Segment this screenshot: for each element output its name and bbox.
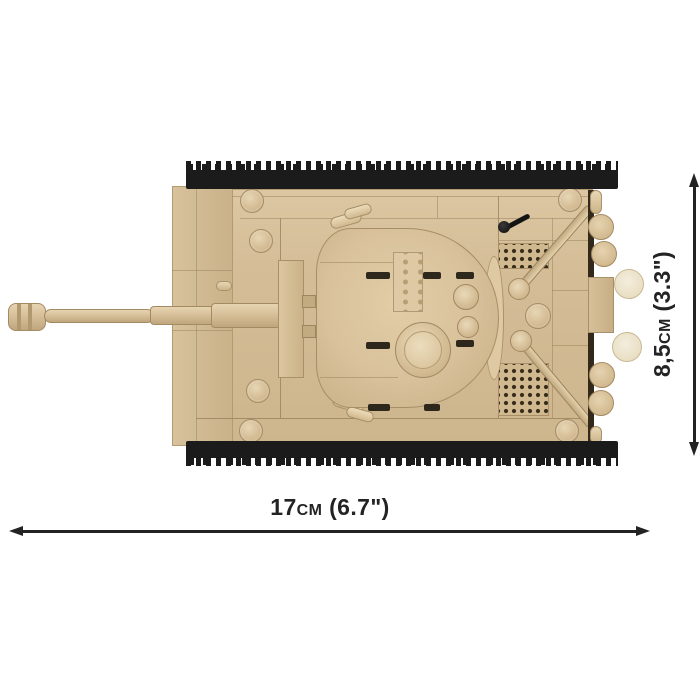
product-image: 17cm (6.7") 8,5cm (3.3") <box>0 0 700 700</box>
arrow-down-icon <box>689 442 699 456</box>
height-dimension-line <box>693 182 696 444</box>
height-dimension: 8,5cm (3.3") <box>0 0 700 700</box>
arrow-up-icon <box>689 173 699 187</box>
height-dimension-label: 8,5cm (3.3") <box>649 234 673 394</box>
